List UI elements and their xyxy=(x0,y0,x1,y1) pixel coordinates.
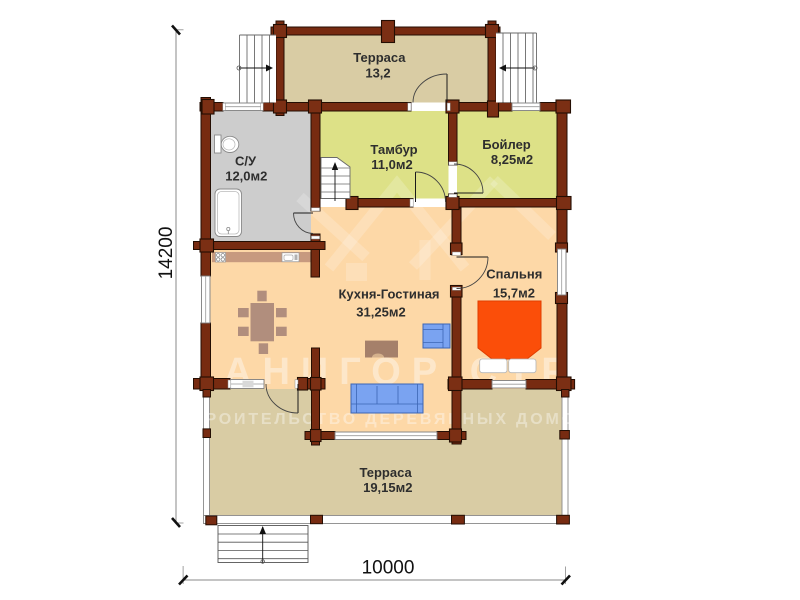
svg-text:АНИГОР СТРОЙ: АНИГОР СТРОЙ xyxy=(224,348,656,393)
svg-text:8,25м2: 8,25м2 xyxy=(491,152,533,167)
svg-text:15,7м2: 15,7м2 xyxy=(493,285,535,300)
svg-text:Бойлер: Бойлер xyxy=(482,137,531,152)
svg-text:Терраса: Терраса xyxy=(359,465,412,480)
svg-text:Кухня-Гостиная: Кухня-Гостиная xyxy=(338,286,439,301)
svg-text:31,25м2: 31,25м2 xyxy=(356,305,405,320)
svg-text:13,2: 13,2 xyxy=(365,66,390,81)
svg-text:14200: 14200 xyxy=(156,227,177,280)
svg-text:19,15м2: 19,15м2 xyxy=(363,480,412,495)
svg-text:Спальня: Спальня xyxy=(486,267,542,282)
svg-text:10000: 10000 xyxy=(362,558,415,579)
svg-text:СТРОИТЕЛЬСТВО ДЕРЕВЯННЫХ ДОМОВ: СТРОИТЕЛЬСТВО ДЕРЕВЯННЫХ ДОМОВ xyxy=(179,411,591,428)
svg-text:Тамбур: Тамбур xyxy=(370,142,417,157)
svg-text:12,0м2: 12,0м2 xyxy=(225,169,267,184)
svg-text:11,0м2: 11,0м2 xyxy=(371,157,412,172)
svg-text:С/У: С/У xyxy=(235,154,257,169)
svg-text:Терраса: Терраса xyxy=(353,50,406,65)
